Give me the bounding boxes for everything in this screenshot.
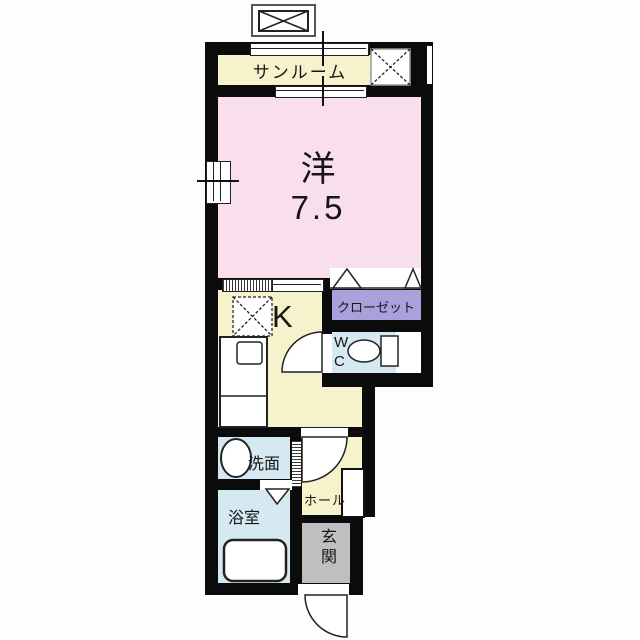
hall-label: ホール	[304, 490, 346, 509]
folding-door-icon	[330, 269, 421, 288]
toilet-tank-icon	[381, 336, 398, 366]
outdoor-unit-box-icon	[252, 5, 315, 36]
wc-label: WC	[334, 334, 349, 372]
bathroom-label: 浴室	[228, 504, 260, 528]
floor-plan: サンルーム 洋 7.5 クローゼット K WC 洗面 ホール 浴室 玄関	[0, 0, 640, 640]
closet-label: クローゼット	[332, 297, 420, 316]
washroom-label: 洗面	[248, 450, 280, 474]
western-room-size: 7.5	[258, 189, 378, 227]
folding-door-icon	[266, 489, 289, 504]
refrigerator-space-icon	[233, 297, 272, 336]
door-swing-arc-icon	[305, 595, 347, 637]
sunroom-label: サンルーム	[230, 58, 370, 83]
kitchen-label: K	[272, 299, 293, 335]
toilet-icon	[348, 336, 398, 366]
washer-space-icon	[371, 49, 410, 85]
door-swing-arc-icon	[282, 332, 322, 372]
entrance-label: 玄関	[314, 528, 338, 568]
kitchen-counter-icon	[220, 337, 267, 427]
door-swing-arc-icon	[302, 437, 347, 482]
bathtub-icon	[224, 540, 286, 581]
kitchen-sink-icon	[237, 342, 262, 364]
washbasin-icon	[221, 439, 251, 477]
western-room-label: 洋	[268, 141, 368, 192]
